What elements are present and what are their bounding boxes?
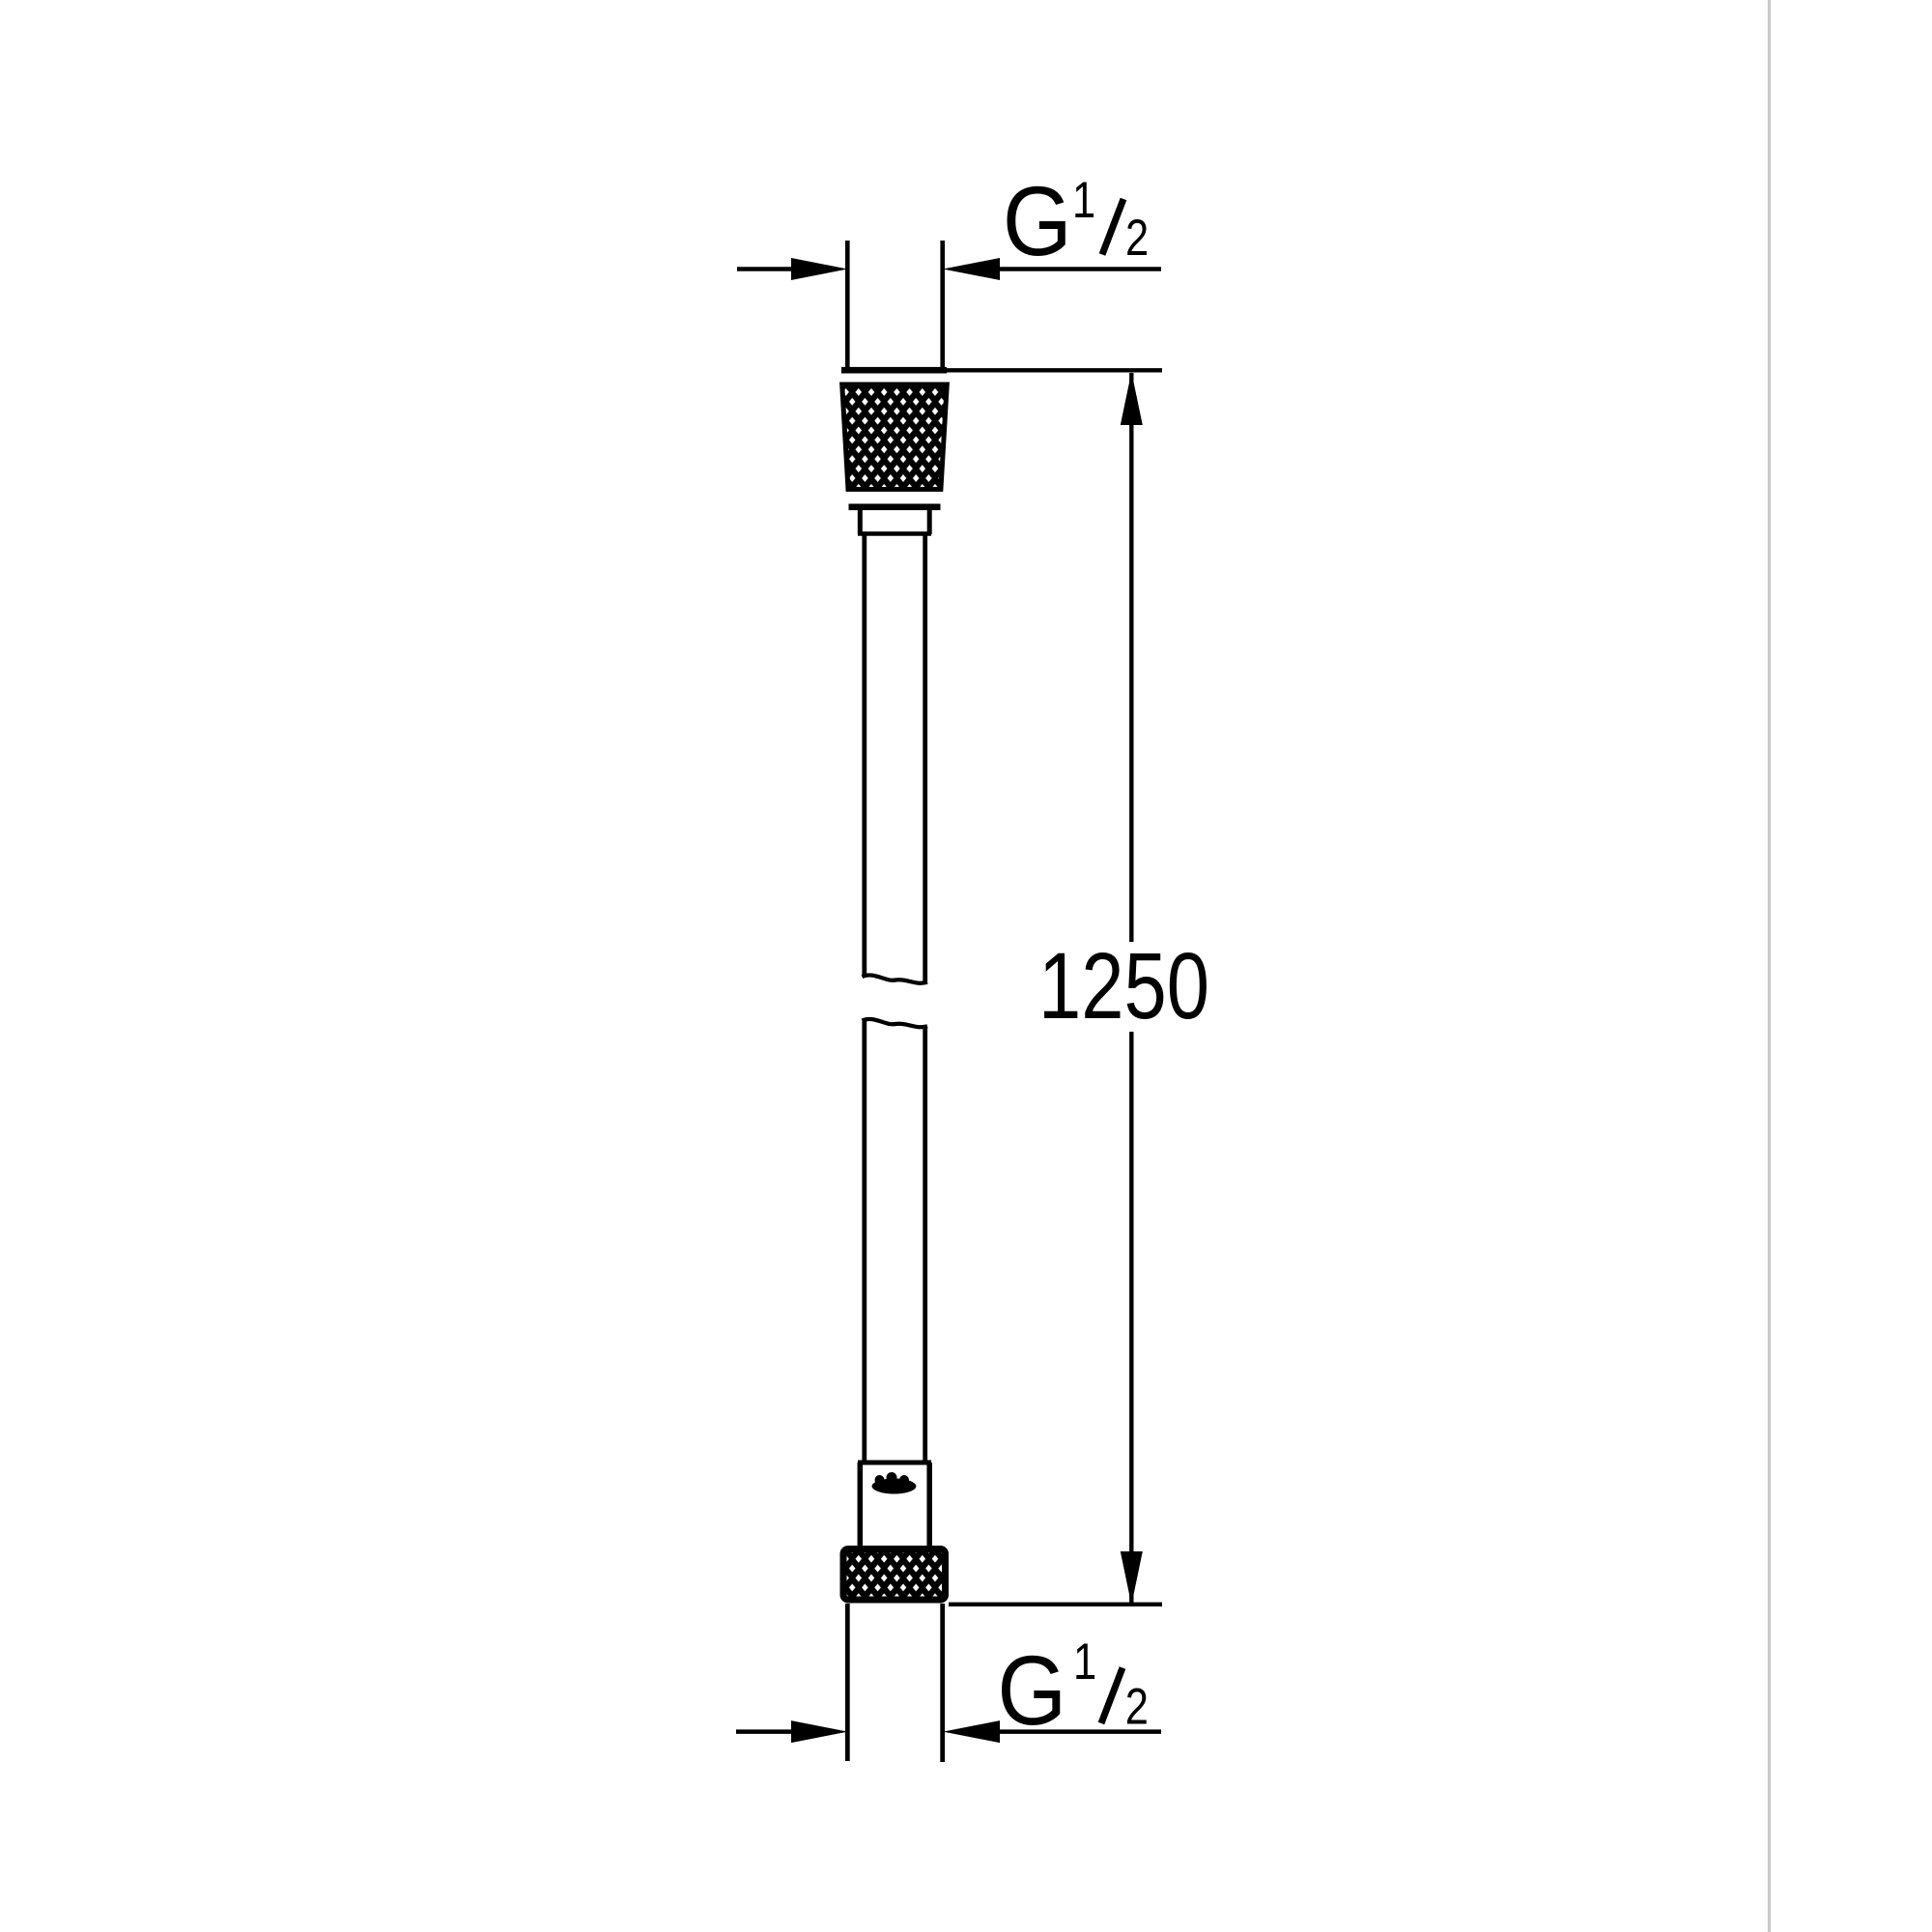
svg-text:1250: 1250	[1038, 934, 1209, 1038]
svg-text:2: 2	[1125, 210, 1149, 267]
svg-text:1: 1	[1073, 1634, 1096, 1690]
svg-text:2: 2	[1125, 1679, 1149, 1736]
svg-text:G: G	[1003, 166, 1072, 276]
svg-text:1: 1	[1072, 172, 1095, 229]
svg-text:G: G	[997, 1635, 1066, 1746]
